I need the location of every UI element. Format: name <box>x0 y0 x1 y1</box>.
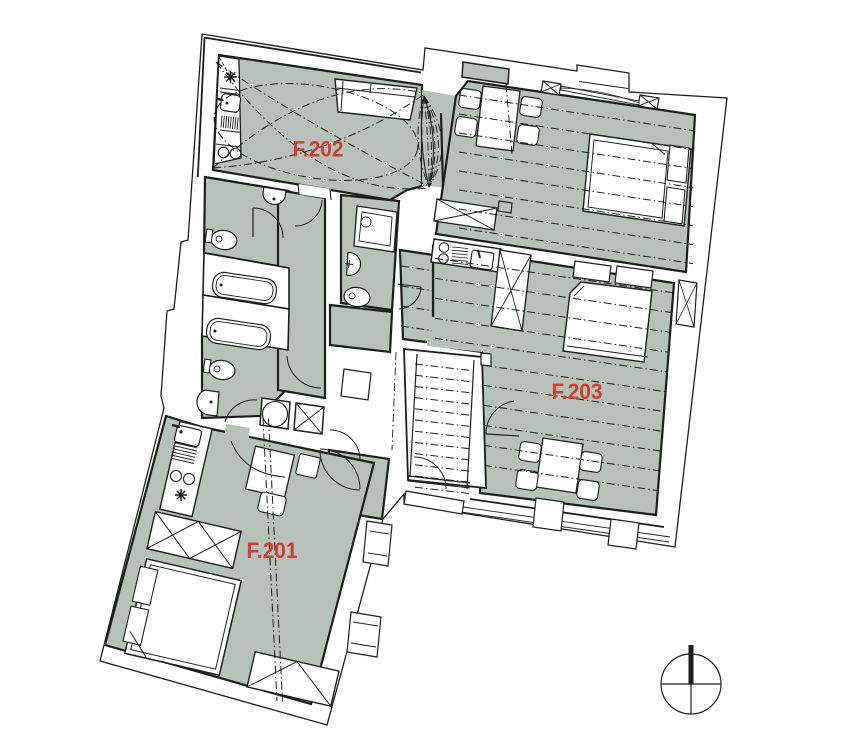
svg-text:F.203: F.203 <box>552 379 603 404</box>
svg-text:F.201: F.201 <box>247 538 298 563</box>
svg-text:F.202: F.202 <box>293 137 344 162</box>
